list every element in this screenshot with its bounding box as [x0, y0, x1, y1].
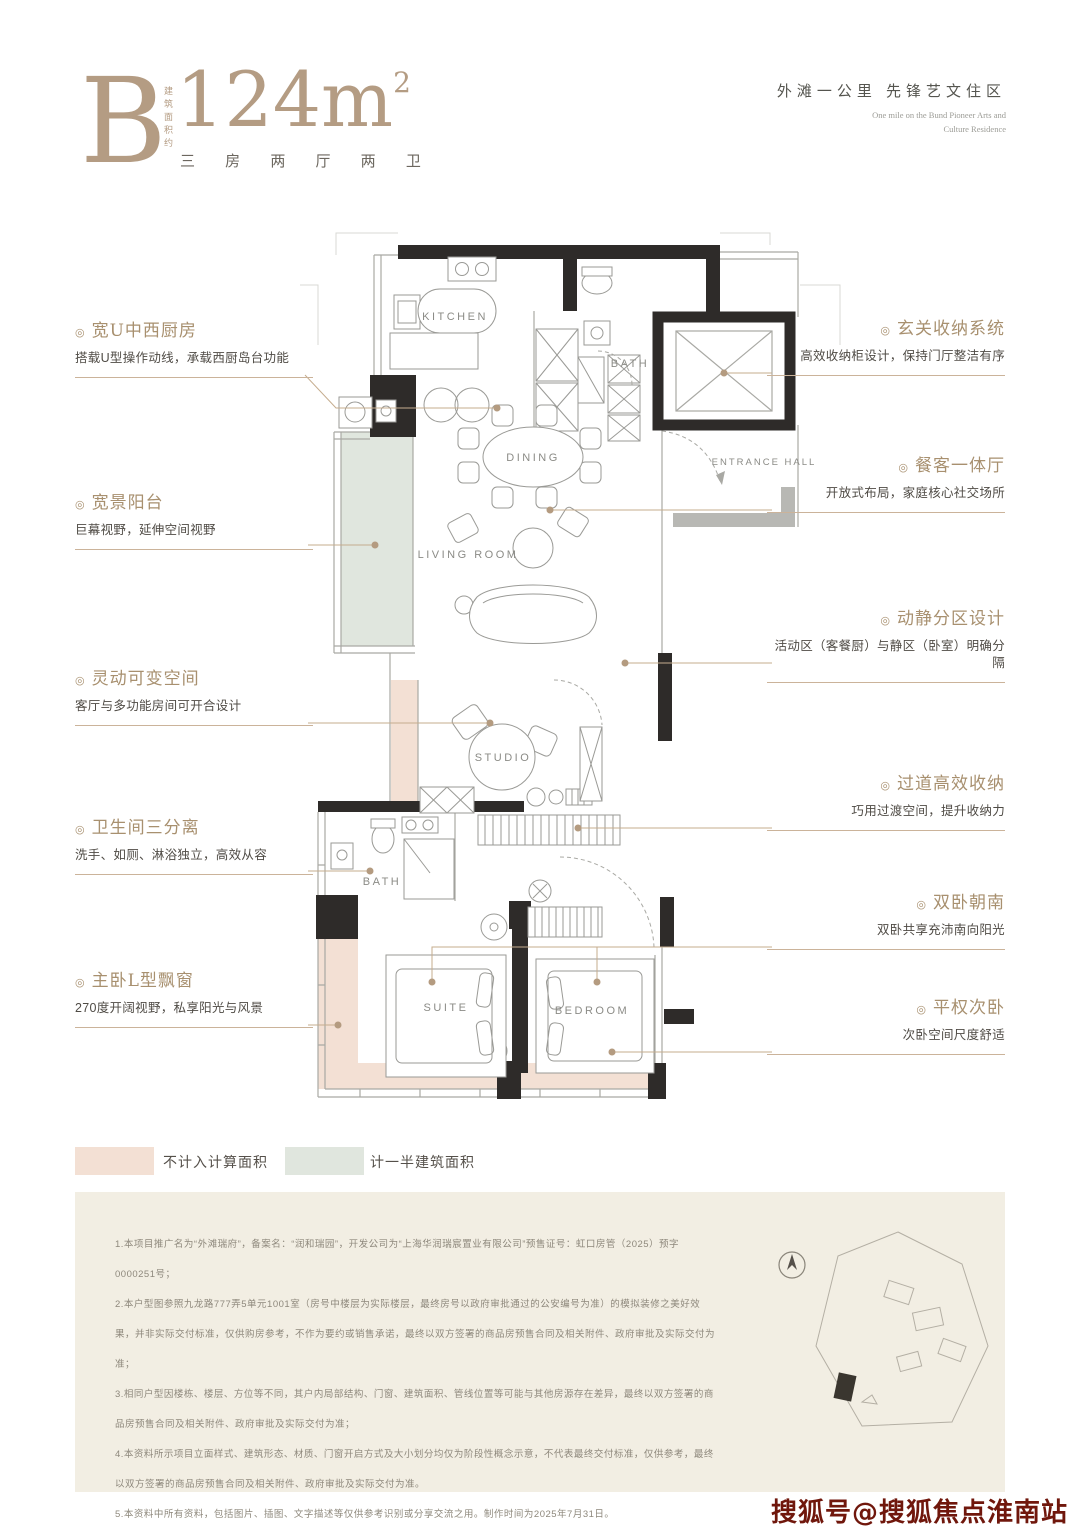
annotation-flex-space: ◎灵动可变空间 客厅与多功能房间可开合设计 [75, 668, 313, 726]
annotation-title: ◎灵动可变空间 [75, 668, 313, 692]
slogan-english-line1: One mile on the Bund Pioneer Arts and [872, 110, 1006, 120]
annotation-corridor-storage: ◎过道高效收纳 巧用过渡空间，提升收纳力 [767, 773, 1005, 831]
annotation-desc: 巨幕视野，延伸空间视野 [75, 522, 313, 539]
annotation-zoning: ◎动静分区设计 活动区（客餐厨）与静区（卧室）明确分隔 [767, 608, 1005, 683]
annotation-dining-living: ◎餐客一体厅 开放式布局，家庭核心社交场所 [767, 455, 1005, 513]
room-label-studio: STUDIO [475, 752, 532, 764]
room-label-dining: DINING [506, 452, 560, 464]
annotation-marker-icon: ◎ [75, 674, 86, 687]
annotation-desc: 270度开阔视野，私享阳光与风景 [75, 1000, 313, 1017]
annotation-second-bedroom: ◎平权次卧 次卧空间尺度舒适 [767, 997, 1005, 1055]
annotation-marker-icon: ◎ [75, 976, 86, 989]
annotation-marker-icon: ◎ [75, 498, 86, 511]
room-label-kitchen: KITCHEN [422, 311, 488, 323]
annotation-marker-icon: ◎ [916, 898, 927, 911]
annotation-south-bedrooms: ◎双卧朝南 双卧共享充沛南向阳光 [767, 892, 1005, 950]
annotation-desc: 次卧空间尺度舒适 [767, 1027, 1005, 1044]
room-label-bath-upper: BATH [611, 358, 650, 370]
disclaimer-line-4: 4.本资料所示项目立面样式、建筑形态、材质、门窗开启方式及大小划分均仅为阶段性概… [115, 1440, 715, 1500]
area-value: 124m [176, 55, 393, 144]
annotation-bay-window: ◎主卧L型飘窗 270度开阔视野，私享阳光与风景 [75, 970, 313, 1028]
annotation-desc: 开放式布局，家庭核心社交场所 [767, 485, 1005, 502]
disclaimer-line-2: 2.本户型图参照九龙路777弄5单元1001室（房号中楼层为实际楼层，最终房号以… [115, 1290, 715, 1380]
watermark: 搜狐号@搜狐焦点淮南站 [771, 1492, 1068, 1529]
annotation-title: ◎主卧L型飘窗 [75, 970, 313, 994]
annotation-marker-icon: ◎ [880, 324, 891, 337]
slogan-chinese: 外滩一公里 先锋艺文住区 [777, 80, 1006, 101]
legend-swatch-green [285, 1147, 364, 1175]
area-superscript: 2 [393, 66, 411, 99]
annotation-desc: 客厅与多功能房间可开合设计 [75, 698, 313, 715]
disclaimer-line-3: 3.相同户型因楼栋、楼层、方位等不同，其户内局部结构、门窗、建筑面积、管线位置等… [115, 1380, 715, 1440]
room-label-living-room: LIVING ROOM [418, 549, 519, 561]
room-label-bath-lower: BATH [363, 876, 402, 888]
legend-label-pink: 不计入计算面积 [163, 1152, 268, 1172]
disclaimer-line-1: 1.本项目推广名为“外滩瑞府”，备案名：“润和瑞园”，开发公司为“上海华润瑞宸置… [115, 1230, 715, 1290]
annotation-desc: 活动区（客餐厨）与静区（卧室）明确分隔 [767, 638, 1005, 672]
annotation-title: ◎卫生间三分离 [75, 817, 313, 841]
annotation-title: ◎平权次卧 [767, 997, 1005, 1021]
disclaimer-text: 1.本项目推广名为“外滩瑞府”，备案名：“润和瑞园”，开发公司为“上海华润瑞宸置… [115, 1230, 715, 1530]
layout-text: 三 房 两 厅 两 卫 [180, 150, 434, 171]
annotation-title: ◎双卧朝南 [767, 892, 1005, 916]
slogan-english-line2: Culture Residence [943, 124, 1006, 134]
annotation-marker-icon: ◎ [898, 461, 909, 474]
annotation-kitchen: ◎宽U中西厨房 搭载U型操作动线，承载西厨岛台功能 [75, 320, 313, 378]
annotation-balcony: ◎宽景阳台 巨幕视野，延伸空间视野 [75, 492, 313, 550]
disclaimer-line-5: 5.本资料中所有资料，包括图片、插图、文字描述等仅供参考识别或分享交流之用。制作… [115, 1500, 715, 1530]
annotation-desc: 巧用过渡空间，提升收纳力 [767, 803, 1005, 820]
annotation-title: ◎餐客一体厅 [767, 455, 1005, 479]
annotation-title: ◎宽景阳台 [75, 492, 313, 516]
site-plan-sketch [802, 1226, 997, 1441]
room-label-suite: SUITE [424, 1002, 469, 1014]
annotation-marker-icon: ◎ [916, 1003, 927, 1016]
annotation-marker-icon: ◎ [75, 326, 86, 339]
annotation-entry-storage: ◎玄关收纳系统 高效收纳柜设计，保持门厅整洁有序 [767, 318, 1005, 376]
room-label-bedroom: BEDROOM [555, 1005, 629, 1017]
annotation-title: ◎宽U中西厨房 [75, 320, 313, 344]
slogan-english: One mile on the Bund Pioneer Arts and Cu… [746, 108, 1006, 137]
area-vertical-label: 建筑面积约 [162, 86, 175, 151]
legend-label-green: 计一半建筑面积 [370, 1152, 475, 1172]
annotation-desc: 高效收纳柜设计，保持门厅整洁有序 [767, 348, 1005, 365]
annotation-marker-icon: ◎ [880, 779, 891, 792]
annotation-desc: 双卧共享充沛南向阳光 [767, 922, 1005, 939]
area-number: 124m2 [176, 62, 411, 138]
annotation-title: ◎玄关收纳系统 [767, 318, 1005, 342]
annotation-bathroom: ◎卫生间三分离 洗手、如厕、淋浴独立，高效从容 [75, 817, 313, 875]
annotation-title: ◎动静分区设计 [767, 608, 1005, 632]
annotation-title: ◎过道高效收纳 [767, 773, 1005, 797]
annotation-desc: 搭载U型操作动线，承载西厨岛台功能 [75, 350, 313, 367]
annotation-desc: 洗手、如厕、淋浴独立，高效从容 [75, 847, 313, 864]
annotation-marker-icon: ◎ [75, 823, 86, 836]
unit-letter: B [80, 62, 167, 180]
legend-swatch-pink [75, 1147, 154, 1175]
annotation-marker-icon: ◎ [880, 614, 891, 627]
